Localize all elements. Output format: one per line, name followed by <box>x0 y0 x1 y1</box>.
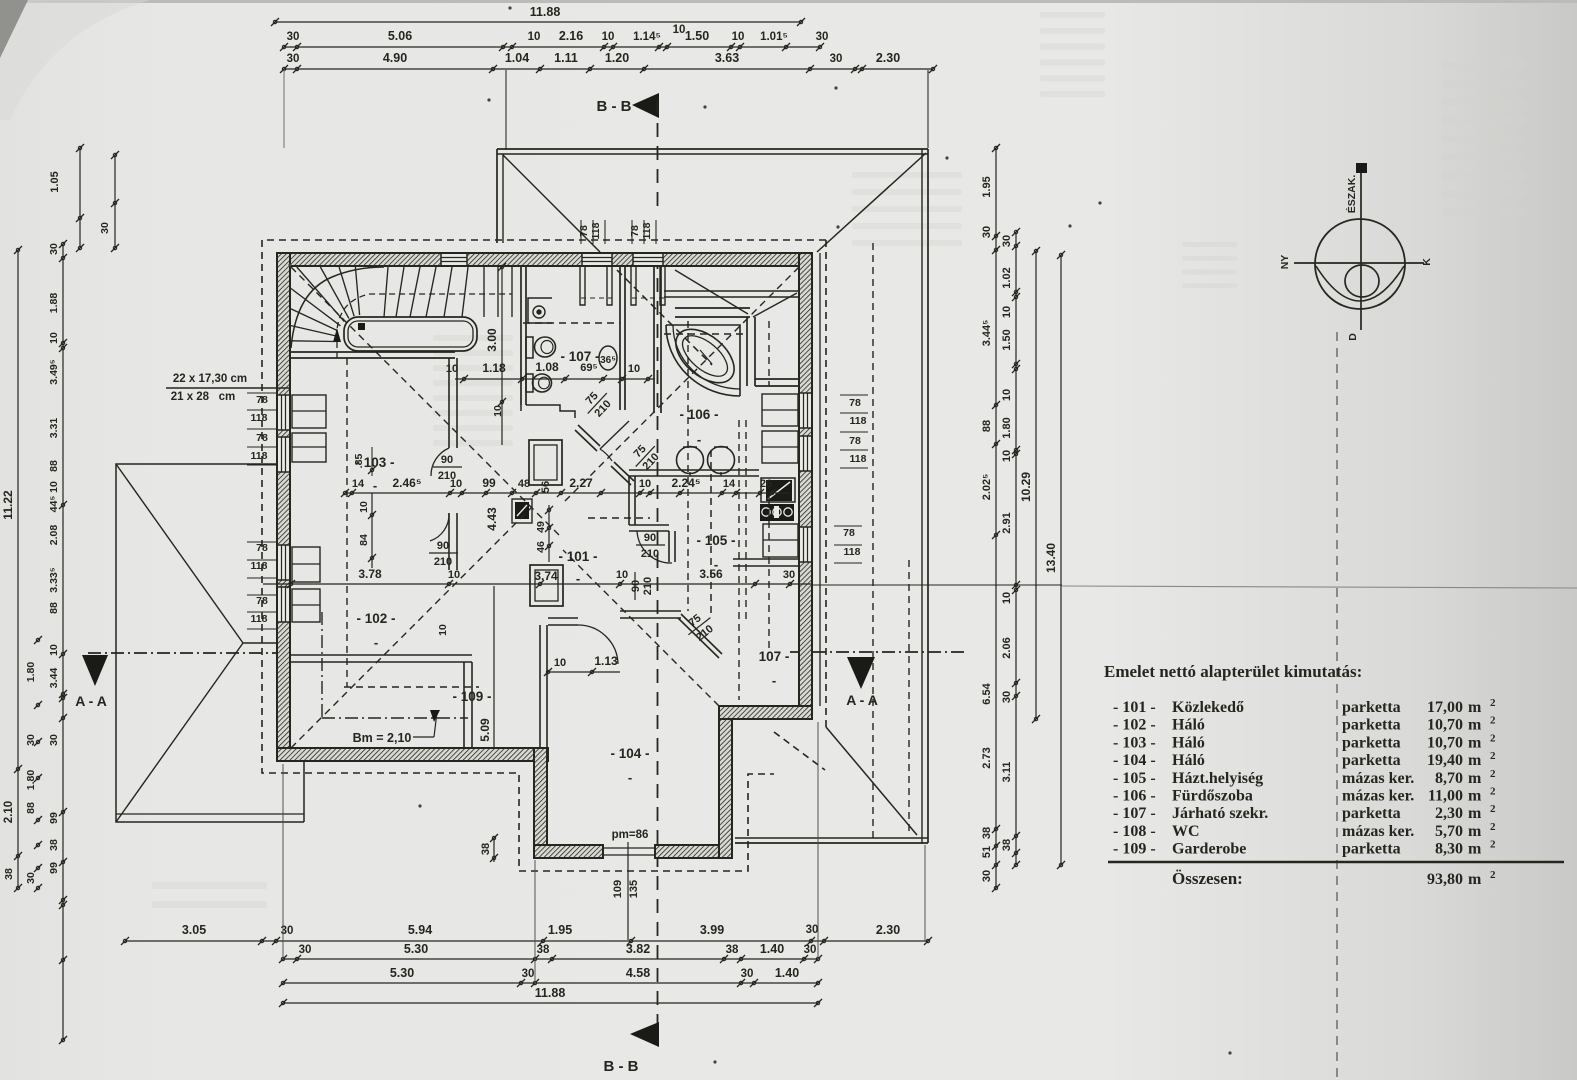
svg-text:Járható szekr.: Járható szekr. <box>1172 805 1268 822</box>
svg-text:10: 10 <box>639 478 651 490</box>
svg-text:22 x 17,30 cm: 22 x 17,30 cm <box>173 373 247 385</box>
svg-text:3.99: 3.99 <box>700 923 724 937</box>
svg-text:1.95: 1.95 <box>548 923 572 937</box>
svg-text:Emelet nettó alapterület kimut: Emelet nettó alapterület kimutatás: <box>1104 662 1362 681</box>
svg-text:38: 38 <box>726 944 739 956</box>
svg-text:30: 30 <box>741 968 754 980</box>
svg-text:78: 78 <box>256 595 268 607</box>
svg-text:99: 99 <box>48 812 60 824</box>
svg-text:109: 109 <box>612 880 624 898</box>
svg-text:135: 135 <box>628 880 640 898</box>
svg-text:2: 2 <box>1490 821 1496 833</box>
svg-text:30: 30 <box>281 925 294 937</box>
svg-text:m: m <box>1468 770 1482 787</box>
svg-text:- 107 -: - 107 - <box>560 349 599 364</box>
svg-text:ÉSZAK.: ÉSZAK. <box>1345 175 1358 214</box>
svg-text:Háló: Háló <box>1172 752 1205 769</box>
svg-text:1.50: 1.50 <box>685 29 709 43</box>
svg-text:1.08: 1.08 <box>535 360 559 374</box>
svg-text:2.10: 2.10 <box>3 801 15 823</box>
svg-text:- 104 -: - 104 - <box>1113 752 1156 769</box>
svg-text:-: - <box>576 571 580 586</box>
svg-text:NY: NY <box>1279 255 1291 270</box>
svg-text:118: 118 <box>251 450 268 462</box>
svg-text:mázas ker.: mázas ker. <box>1342 770 1414 787</box>
svg-text:30: 30 <box>981 226 993 238</box>
svg-text:10.29: 10.29 <box>1019 472 1033 502</box>
svg-text:10: 10 <box>358 501 370 513</box>
svg-text:parketta: parketta <box>1342 717 1401 734</box>
svg-text:Összesen:: Összesen: <box>1172 869 1243 888</box>
svg-text:210: 210 <box>434 556 452 568</box>
svg-text:99: 99 <box>48 862 60 874</box>
svg-text:- 101 -: - 101 - <box>1113 699 1156 716</box>
svg-text:118: 118 <box>251 613 268 625</box>
svg-text:- 105 -: - 105 - <box>1113 770 1156 787</box>
svg-text:1.50: 1.50 <box>1001 329 1013 350</box>
svg-text:26: 26 <box>760 478 772 490</box>
svg-text:Bm = 2,10: Bm = 2,10 <box>353 731 412 745</box>
svg-text:210: 210 <box>642 577 654 595</box>
svg-text:m: m <box>1468 823 1482 840</box>
svg-text:78: 78 <box>849 435 861 447</box>
svg-text:-: - <box>628 770 632 785</box>
svg-text:78: 78 <box>849 397 861 409</box>
svg-text:51: 51 <box>981 846 993 858</box>
svg-text:88: 88 <box>25 802 37 814</box>
svg-text:1.80: 1.80 <box>1001 417 1013 438</box>
svg-text:78: 78 <box>629 225 641 237</box>
svg-text:- 102 -: - 102 - <box>1113 717 1156 734</box>
svg-text:3.11: 3.11 <box>1001 762 1013 783</box>
svg-text:118: 118 <box>590 222 602 239</box>
svg-text:13.40: 13.40 <box>1044 543 1058 573</box>
svg-text:1.88: 1.88 <box>48 293 60 314</box>
svg-text:84: 84 <box>358 534 370 546</box>
svg-text:30: 30 <box>99 222 111 234</box>
svg-text:6.54: 6.54 <box>981 682 993 704</box>
svg-text:30: 30 <box>981 870 993 882</box>
svg-text:90: 90 <box>644 532 656 544</box>
svg-text:11.88: 11.88 <box>530 5 561 19</box>
svg-text:K: K <box>1421 258 1433 266</box>
svg-text:pm=86: pm=86 <box>612 829 649 841</box>
svg-text:1.40: 1.40 <box>775 966 799 980</box>
svg-text:99: 99 <box>482 476 496 490</box>
svg-text:- 103 -: - 103 - <box>1113 734 1156 751</box>
svg-text:parketta: parketta <box>1342 841 1401 858</box>
svg-text:4.43: 4.43 <box>485 507 499 531</box>
svg-text:30: 30 <box>48 734 60 746</box>
svg-text:14: 14 <box>723 478 736 490</box>
svg-text:3.74: 3.74 <box>534 569 558 583</box>
svg-text:30: 30 <box>299 944 312 956</box>
svg-text:5.06: 5.06 <box>388 29 412 43</box>
svg-text:2.06: 2.06 <box>1001 637 1013 658</box>
svg-text:10: 10 <box>732 31 745 43</box>
svg-text:49: 49 <box>535 521 547 533</box>
svg-text:10: 10 <box>437 624 449 636</box>
svg-text:1.02: 1.02 <box>1001 267 1013 288</box>
svg-text:38: 38 <box>1001 839 1013 851</box>
svg-text:36⁵: 36⁵ <box>600 355 616 366</box>
svg-text:A - A: A - A <box>75 693 107 709</box>
svg-text:210: 210 <box>641 548 659 560</box>
svg-text:78: 78 <box>256 432 268 444</box>
svg-text:1.80: 1.80 <box>25 662 37 683</box>
svg-text:Közlekedő: Közlekedő <box>1172 699 1244 716</box>
svg-text:10: 10 <box>446 363 458 375</box>
svg-text:90: 90 <box>437 540 449 552</box>
svg-text:2: 2 <box>1490 839 1496 851</box>
svg-text:2.27: 2.27 <box>569 476 593 490</box>
svg-text:m: m <box>1468 717 1482 734</box>
svg-text:B - B: B - B <box>597 98 632 115</box>
svg-text:118: 118 <box>850 415 867 427</box>
svg-text:10: 10 <box>1001 592 1013 604</box>
svg-text:30: 30 <box>806 924 819 936</box>
svg-text:m: m <box>1468 699 1482 716</box>
svg-text:parketta: parketta <box>1342 734 1401 751</box>
svg-text:10: 10 <box>616 569 628 581</box>
svg-text:88: 88 <box>981 420 993 432</box>
svg-text:10: 10 <box>48 332 60 344</box>
svg-text:-: - <box>697 432 701 447</box>
svg-text:parketta: parketta <box>1342 699 1401 716</box>
svg-text:B - B: B - B <box>604 1058 639 1075</box>
svg-text:30: 30 <box>48 243 60 255</box>
svg-text:2,30: 2,30 <box>1435 805 1463 822</box>
svg-text:Házt.helyiség: Házt.helyiség <box>1172 770 1263 787</box>
svg-text:- 101 -: - 101 - <box>558 549 597 564</box>
svg-text:5.94: 5.94 <box>408 923 432 937</box>
svg-text:parketta: parketta <box>1342 752 1401 769</box>
svg-text:m: m <box>1468 734 1482 751</box>
svg-text:5.30: 5.30 <box>390 966 414 980</box>
svg-text:- 106 -: - 106 - <box>679 407 718 422</box>
svg-text:90: 90 <box>630 580 642 592</box>
svg-text:- 102 -: - 102 - <box>356 611 395 626</box>
svg-text:21 x 28 cm: 21 x 28 cm <box>171 391 236 403</box>
svg-text:WC: WC <box>1172 823 1200 840</box>
svg-text:1.01⁵: 1.01⁵ <box>760 31 788 43</box>
svg-text:2: 2 <box>1490 768 1496 780</box>
svg-text:10: 10 <box>492 405 504 417</box>
svg-text:4.58: 4.58 <box>626 966 650 980</box>
svg-text:8,70: 8,70 <box>1435 770 1463 787</box>
svg-text:2: 2 <box>1490 869 1496 881</box>
svg-text:10: 10 <box>48 644 60 656</box>
svg-text:1.95: 1.95 <box>981 176 993 197</box>
svg-text:1.14⁵: 1.14⁵ <box>633 31 661 43</box>
svg-text:10: 10 <box>628 363 640 375</box>
svg-text:3.56: 3.56 <box>699 567 723 581</box>
svg-text:1.05: 1.05 <box>49 171 61 192</box>
svg-text:2: 2 <box>1490 697 1496 709</box>
svg-text:30: 30 <box>830 53 843 65</box>
svg-text:93,80: 93,80 <box>1427 871 1463 888</box>
svg-text:Garderobe: Garderobe <box>1172 841 1246 858</box>
svg-text:10: 10 <box>528 31 541 43</box>
svg-text:m: m <box>1468 788 1482 805</box>
svg-text:10: 10 <box>448 569 460 581</box>
svg-text:30: 30 <box>783 569 795 581</box>
svg-text:3.44⁵: 3.44⁵ <box>981 320 993 347</box>
svg-text:107 -: 107 - <box>759 649 790 664</box>
svg-text:-: - <box>714 557 718 572</box>
svg-text:- 104 -: - 104 - <box>610 746 649 761</box>
svg-text:2.24⁵: 2.24⁵ <box>672 476 701 490</box>
svg-text:19,40: 19,40 <box>1427 752 1463 769</box>
svg-text:D: D <box>1347 333 1359 341</box>
svg-text:88: 88 <box>48 602 60 614</box>
svg-text:- 108 -: - 108 - <box>1113 823 1156 840</box>
svg-text:Háló: Háló <box>1172 734 1205 751</box>
svg-text:30: 30 <box>287 53 300 65</box>
svg-text:11.22: 11.22 <box>1 490 15 520</box>
svg-text:- 109 -: - 109 - <box>1113 841 1156 858</box>
svg-text:48: 48 <box>518 478 530 490</box>
svg-text:30: 30 <box>1001 235 1013 247</box>
svg-text:30: 30 <box>287 31 300 43</box>
svg-text:30: 30 <box>804 944 817 956</box>
svg-text:2: 2 <box>1490 732 1496 744</box>
svg-text:-: - <box>373 478 377 493</box>
svg-text:10: 10 <box>48 481 60 493</box>
svg-text:2.30: 2.30 <box>876 923 900 937</box>
svg-text:3.31: 3.31 <box>48 418 60 439</box>
svg-text:10: 10 <box>1001 450 1013 462</box>
svg-text:2.30: 2.30 <box>876 51 900 65</box>
svg-text:4.90: 4.90 <box>383 51 407 65</box>
svg-text:8,30: 8,30 <box>1435 841 1463 858</box>
svg-text:10,70: 10,70 <box>1427 717 1463 734</box>
svg-text:30: 30 <box>1001 691 1013 703</box>
svg-text:118: 118 <box>641 222 653 239</box>
svg-text:118: 118 <box>251 560 268 572</box>
svg-text:2: 2 <box>1490 715 1496 727</box>
svg-text:-: - <box>772 673 776 688</box>
svg-text:2.73: 2.73 <box>981 747 993 768</box>
svg-text:10,70: 10,70 <box>1427 734 1463 751</box>
svg-text:- 105 -: - 105 - <box>696 533 735 548</box>
svg-text:3.05: 3.05 <box>182 923 206 937</box>
svg-text:44⁵: 44⁵ <box>48 496 60 513</box>
svg-text:3.33⁵: 3.33⁵ <box>48 567 60 592</box>
svg-text:14: 14 <box>352 478 365 490</box>
svg-text:3.78: 3.78 <box>358 567 382 581</box>
svg-text:38: 38 <box>48 839 60 851</box>
svg-text:2: 2 <box>1490 750 1496 762</box>
svg-text:mázas ker.: mázas ker. <box>1342 823 1414 840</box>
svg-text:2.91: 2.91 <box>1001 512 1013 533</box>
svg-text:38: 38 <box>3 868 15 880</box>
svg-text:78: 78 <box>256 542 268 554</box>
svg-text:30: 30 <box>25 872 37 884</box>
svg-text:11.88: 11.88 <box>535 986 566 1000</box>
svg-text:118: 118 <box>251 412 268 424</box>
svg-text:3.63: 3.63 <box>715 51 739 65</box>
svg-text:1.13: 1.13 <box>594 654 618 668</box>
svg-text:m: m <box>1468 752 1482 769</box>
svg-text:m: m <box>1468 871 1482 888</box>
svg-text:Háló: Háló <box>1172 717 1205 734</box>
svg-text:10: 10 <box>1001 306 1013 318</box>
svg-text:- 107 -: - 107 - <box>1113 805 1156 822</box>
svg-text:30: 30 <box>816 31 829 43</box>
svg-text:56: 56 <box>540 481 552 493</box>
svg-text:10: 10 <box>1001 389 1013 401</box>
svg-text:1.11: 1.11 <box>554 51 578 65</box>
svg-text:38: 38 <box>537 944 550 956</box>
svg-text:m: m <box>1468 805 1482 822</box>
svg-text:88: 88 <box>48 460 60 472</box>
svg-text:30: 30 <box>522 968 535 980</box>
svg-text:78: 78 <box>578 225 590 237</box>
svg-text:90: 90 <box>441 454 453 466</box>
svg-text:5,70: 5,70 <box>1435 823 1463 840</box>
svg-text:3.49⁵: 3.49⁵ <box>48 359 60 384</box>
svg-text:38: 38 <box>981 827 993 839</box>
svg-text:1.20: 1.20 <box>605 51 629 65</box>
svg-text:17,00: 17,00 <box>1427 699 1463 716</box>
svg-text:5.30: 5.30 <box>404 942 428 956</box>
svg-text:5.09: 5.09 <box>478 718 492 742</box>
svg-text:2: 2 <box>1490 786 1496 798</box>
svg-text:- 103 -: - 103 - <box>355 455 394 470</box>
svg-text:-: - <box>374 635 378 650</box>
svg-text:- 106 -: - 106 - <box>1113 788 1156 805</box>
svg-text:118: 118 <box>850 453 867 465</box>
svg-text:2.08: 2.08 <box>48 525 60 546</box>
svg-text:3.00: 3.00 <box>485 328 499 352</box>
svg-text:1.04: 1.04 <box>505 51 529 65</box>
svg-text:3.44: 3.44 <box>48 668 60 689</box>
svg-text:Fürdőszoba: Fürdőszoba <box>1172 788 1253 805</box>
svg-text:3.82: 3.82 <box>626 942 650 956</box>
svg-text:2.46⁵: 2.46⁵ <box>393 476 422 490</box>
svg-text:78: 78 <box>256 394 268 406</box>
svg-text:78: 78 <box>843 527 855 539</box>
svg-text:m: m <box>1468 841 1482 858</box>
svg-text:10: 10 <box>673 24 686 36</box>
svg-text:118: 118 <box>844 546 861 558</box>
svg-text:2.02⁵: 2.02⁵ <box>981 474 993 501</box>
svg-text:10: 10 <box>450 478 462 490</box>
svg-text:1.40: 1.40 <box>760 942 784 956</box>
svg-text:11,00: 11,00 <box>1428 788 1463 805</box>
svg-text:parketta: parketta <box>1342 805 1401 822</box>
svg-text:10: 10 <box>554 657 566 669</box>
svg-text:38: 38 <box>480 843 492 855</box>
svg-text:- 109 -: - 109 - <box>452 689 491 704</box>
svg-text:10: 10 <box>602 31 615 43</box>
svg-text:2.16: 2.16 <box>559 29 583 43</box>
svg-text:46: 46 <box>535 541 547 553</box>
svg-text:mázas ker.: mázas ker. <box>1342 788 1414 805</box>
svg-text:2: 2 <box>1490 803 1496 815</box>
